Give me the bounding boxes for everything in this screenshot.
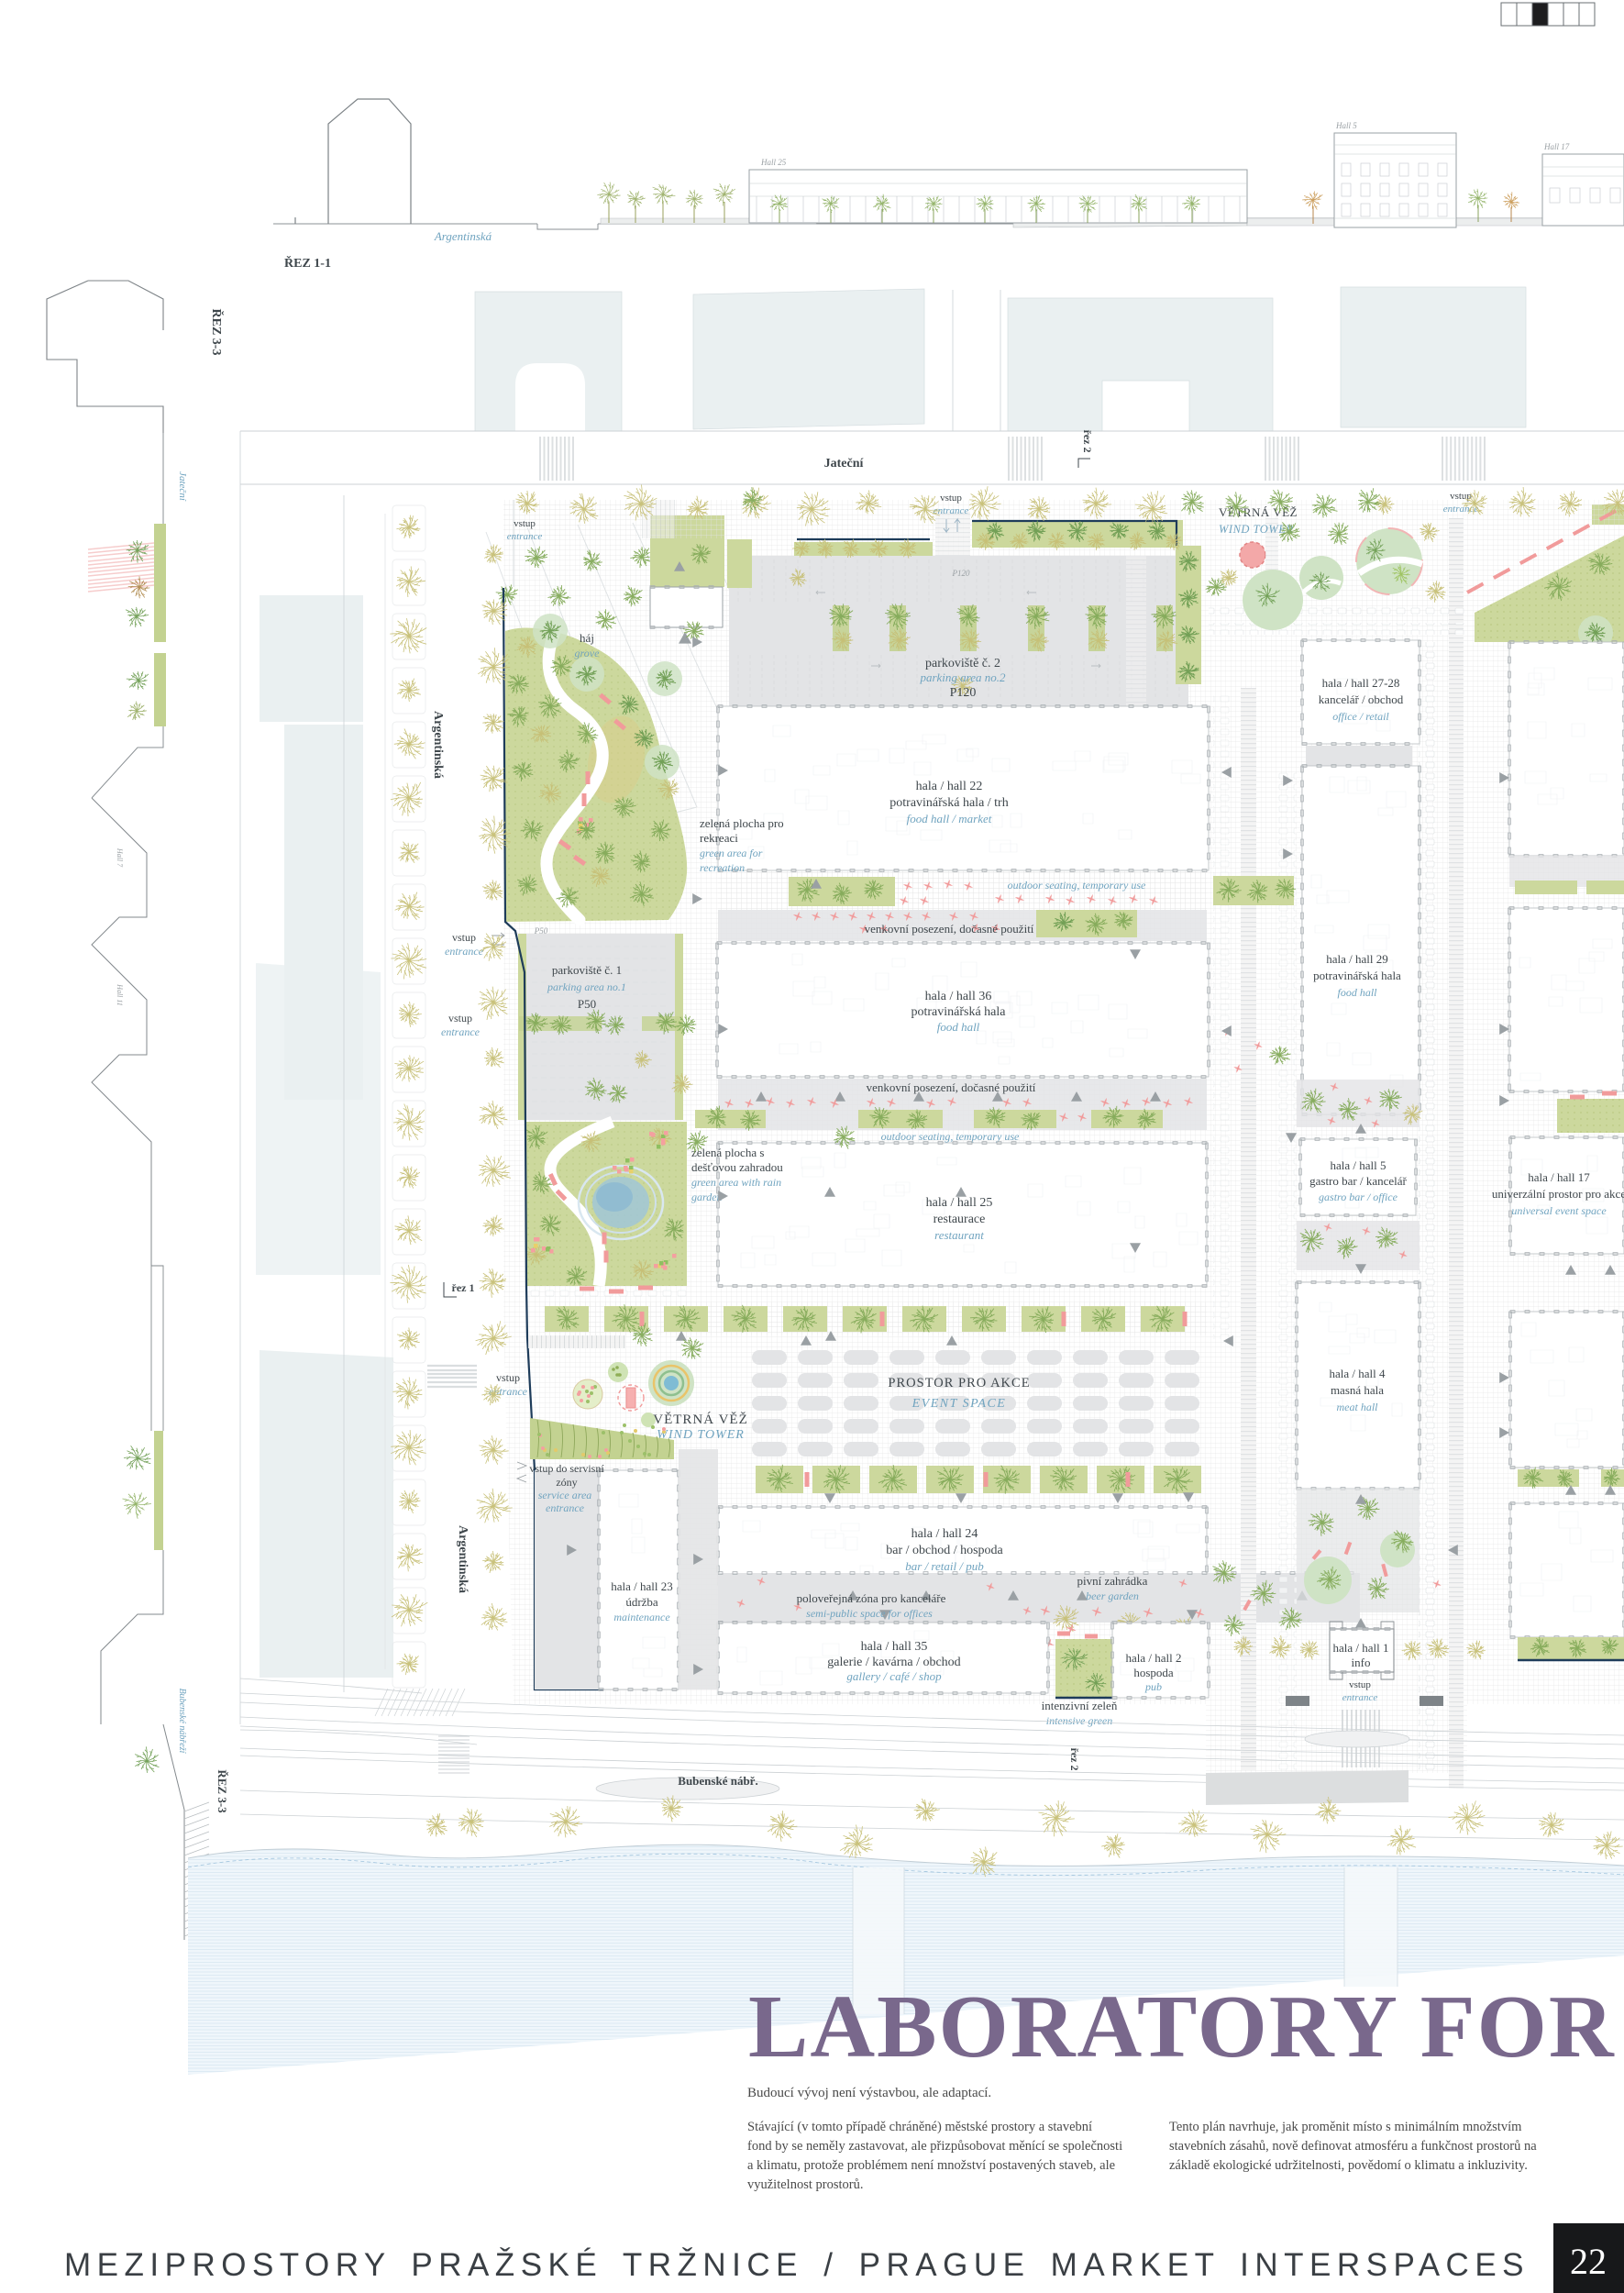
svg-text:Argentinská: Argentinská [434, 229, 492, 243]
svg-text:entrance: entrance [507, 531, 543, 542]
svg-text:vstup: vstup [940, 493, 962, 504]
svg-text:P50: P50 [578, 997, 596, 1011]
svg-text:garden: garden [691, 1191, 723, 1203]
svg-text:vstup: vstup [1349, 1679, 1371, 1690]
svg-text:entrance: entrance [441, 1025, 481, 1038]
svg-text:potravinářská hala: potravinářská hala [911, 1005, 1006, 1019]
svg-text:green area with rain: green area with rain [691, 1176, 781, 1189]
svg-text:parkoviště č. 1: parkoviště č. 1 [552, 963, 622, 977]
svg-text:EVENT SPACE: EVENT SPACE [911, 1397, 1007, 1411]
svg-text:Hall 17: Hall 17 [1543, 142, 1570, 151]
svg-text:parking area no.1: parking area no.1 [547, 980, 626, 993]
svg-text:ŘEZ 3-3: ŘEZ 3-3 [209, 309, 225, 356]
svg-text:meat hall: meat hall [1337, 1401, 1379, 1413]
svg-text:parking area no.2: parking area no.2 [919, 670, 1006, 684]
svg-text:VĚTRNÁ VĚŽ: VĚTRNÁ VĚŽ [1219, 505, 1298, 519]
svg-text:hala / hall 24: hala / hall 24 [911, 1527, 978, 1541]
svg-text:hala / hall 35: hala / hall 35 [861, 1640, 928, 1654]
svg-text:hala / hall 23: hala / hall 23 [611, 1579, 673, 1593]
svg-text:Stávající (v tomto případě: Stávající (v tomto případě chráněné) měs… [747, 2120, 1092, 2134]
svg-text:kancelář / obchod: kancelář / obchod [1319, 692, 1404, 706]
svg-text:rekreaci: rekreaci [700, 831, 738, 845]
svg-text:údržba: údržba [625, 1595, 658, 1609]
svg-text:vstup: vstup [448, 1012, 472, 1025]
svg-text:vstup: vstup [496, 1371, 520, 1384]
svg-text:ŘEZ 1-1: ŘEZ 1-1 [284, 255, 331, 271]
svg-text:Jateční: Jateční [177, 471, 188, 502]
svg-text:základě ekologické udržitelnos: základě ekologické udržitelnosti, povědo… [1169, 2158, 1528, 2173]
svg-text:zelená plocha s: zelená plocha s [691, 1146, 764, 1159]
svg-text:Hall 7: Hall 7 [116, 847, 124, 868]
svg-text:hala / hall 2: hala / hall 2 [1125, 1651, 1181, 1665]
svg-text:universal event space: universal event space [1511, 1204, 1607, 1217]
svg-text:bar / retail / pub: bar / retail / pub [905, 1559, 984, 1573]
svg-text:hala / hall 22: hala / hall 22 [916, 780, 983, 793]
svg-text:hala / hall 27-28: hala / hall 27-28 [1322, 676, 1400, 690]
svg-text:pub: pub [1144, 1680, 1162, 1693]
svg-text:office / retail: office / retail [1332, 710, 1389, 723]
svg-text:vstup: vstup [514, 518, 536, 529]
svg-text:intenzivní zeleň: intenzivní zeleň [1042, 1699, 1118, 1712]
svg-text:semi-public space for offices: semi-public space for offices [806, 1607, 933, 1620]
svg-text:Tento plán navrhuje, jak p: Tento plán navrhuje, jak proměnit místo … [1169, 2120, 1522, 2134]
svg-text:Hall 5: Hall 5 [1335, 121, 1357, 130]
svg-text:P50: P50 [534, 926, 548, 936]
svg-text:PROSTOR PRO AKCE: PROSTOR PRO AKCE [888, 1376, 1030, 1390]
svg-text:venkovní posezení, dočasné pou: venkovní posezení, dočasné použití [865, 922, 1034, 936]
svg-text:intensive green: intensive green [1046, 1714, 1113, 1727]
svg-text:gastro bar / kancelář: gastro bar / kancelář [1309, 1174, 1407, 1188]
svg-text:restaurant: restaurant [934, 1228, 984, 1242]
svg-text:info: info [1352, 1656, 1371, 1669]
svg-text:Hall 25: Hall 25 [760, 158, 787, 167]
svg-text:entrance: entrance [445, 945, 484, 958]
svg-text:vstup: vstup [452, 931, 476, 944]
svg-text:zelená plocha pro: zelená plocha pro [700, 816, 784, 830]
svg-text:háj: háj [580, 631, 594, 645]
svg-text:food hall / market: food hall / market [907, 812, 992, 825]
svg-text:Argentinská: Argentinská [431, 711, 445, 779]
svg-text:recreation: recreation [700, 861, 745, 874]
svg-text:hala / hall 4: hala / hall 4 [1329, 1367, 1386, 1380]
svg-text:hala / hall 25: hala / hall 25 [926, 1196, 993, 1210]
svg-text:outdoor seating, temporary use: outdoor seating, temporary use [881, 1130, 1020, 1143]
svg-text:bar / obchod / hospoda: bar / obchod / hospoda [886, 1544, 1003, 1557]
svg-text:VĚTRNÁ VĚŽ: VĚTRNÁ VĚŽ [653, 1412, 747, 1427]
svg-text:hospoda: hospoda [1133, 1666, 1174, 1679]
svg-text:Hall 11: Hall 11 [116, 983, 124, 1006]
svg-text:grove: grove [575, 647, 601, 659]
svg-text:gallery / café / shop: gallery / café / shop [846, 1669, 942, 1683]
svg-text:využitelnost prostorů.: využitelnost prostorů. [747, 2177, 863, 2192]
svg-text:22: 22 [1570, 2241, 1607, 2282]
svg-text:Jateční: Jateční [824, 457, 865, 471]
svg-text:P120: P120 [952, 569, 970, 578]
svg-text:dešťovou zahradou: dešťovou zahradou [691, 1160, 783, 1174]
svg-text:food hall: food hall [1337, 986, 1377, 999]
svg-text:restaurace: restaurace [934, 1213, 986, 1226]
svg-text:potravinářská hala / trh: potravinářská hala / trh [889, 796, 1008, 810]
svg-text:entrance: entrance [1342, 1692, 1378, 1703]
svg-text:Bubenské nábř.: Bubenské nábř. [678, 1774, 757, 1788]
svg-text:beer garden: beer garden [1086, 1590, 1139, 1602]
svg-text:galerie / kavárna / obchod: galerie / kavárna / obchod [827, 1656, 960, 1669]
svg-text:Bubenské nábřeží: Bubenské nábřeží [177, 1689, 187, 1755]
svg-text:venkovní posezení, dočasné pou: venkovní posezení, dočasné použití [867, 1080, 1036, 1094]
svg-text:řez 2: řez 2 [1081, 430, 1094, 453]
svg-text:parkoviště č. 2: parkoviště č. 2 [925, 657, 1000, 670]
svg-text:outdoor seating, temporary use: outdoor seating, temporary use [1008, 879, 1146, 892]
svg-text:hala / hall 1: hala / hall 1 [1332, 1641, 1388, 1655]
svg-text:hala / hall 29: hala / hall 29 [1326, 952, 1388, 966]
svg-text:vstup do servisní: vstup do servisní [529, 1462, 604, 1475]
svg-text:stavebních zásahů, nově def: stavebních zásahů, nově definovat atmosf… [1169, 2139, 1537, 2154]
svg-text:Argentinská: Argentinská [456, 1525, 470, 1593]
svg-text:řez 2: řez 2 [1068, 1748, 1081, 1771]
svg-text:P120: P120 [950, 686, 977, 700]
svg-text:service area: service area [538, 1489, 592, 1501]
svg-text:hala / hall 5: hala / hall 5 [1330, 1158, 1386, 1172]
svg-text:potravinářská hala: potravinářská hala [1313, 969, 1401, 982]
svg-text:MEZIPROSTORY PRAŽSKÉ TRŽNICE: MEZIPROSTORY PRAŽSKÉ TRŽNICE / PRAGUE MA… [64, 2247, 1530, 2283]
svg-text:green area for: green area for [700, 847, 763, 859]
svg-text:pivní zahrádka: pivní zahrádka [1077, 1574, 1148, 1588]
svg-text:řez 1: řez 1 [452, 1281, 475, 1294]
svg-text:a klimatu, protože probléme: a klimatu, protože problémem není množst… [747, 2158, 1115, 2173]
svg-text:ŘEZ 3-3: ŘEZ 3-3 [215, 1769, 229, 1813]
svg-text:poloveřejná zóna pro kanceláře: poloveřejná zóna pro kanceláře [797, 1591, 946, 1605]
svg-text:maintenance: maintenance [613, 1611, 670, 1623]
svg-text:hala / hall 17: hala / hall 17 [1528, 1170, 1590, 1184]
svg-text:fond by se neměly zastavov: fond by se neměly zastavovat, ale přizpů… [747, 2139, 1122, 2154]
svg-text:Budoucí vývoj není výstavbou,: Budoucí vývoj není výstavbou, ale adapta… [747, 2086, 991, 2100]
svg-text:LABORATORY FOR: LABORATORY FOR [748, 1977, 1616, 2077]
svg-text:gastro bar / office: gastro bar / office [1319, 1191, 1398, 1203]
svg-text:entrance: entrance [546, 1501, 585, 1514]
svg-text:masná hala: masná hala [1331, 1383, 1384, 1397]
svg-text:hala / hall 36: hala / hall 36 [925, 990, 992, 1003]
svg-text:zóny: zóny [556, 1476, 577, 1489]
svg-text:univerzální prostor pro akce: univerzální prostor pro akce [1492, 1187, 1624, 1201]
svg-text:food hall: food hall [937, 1020, 980, 1034]
